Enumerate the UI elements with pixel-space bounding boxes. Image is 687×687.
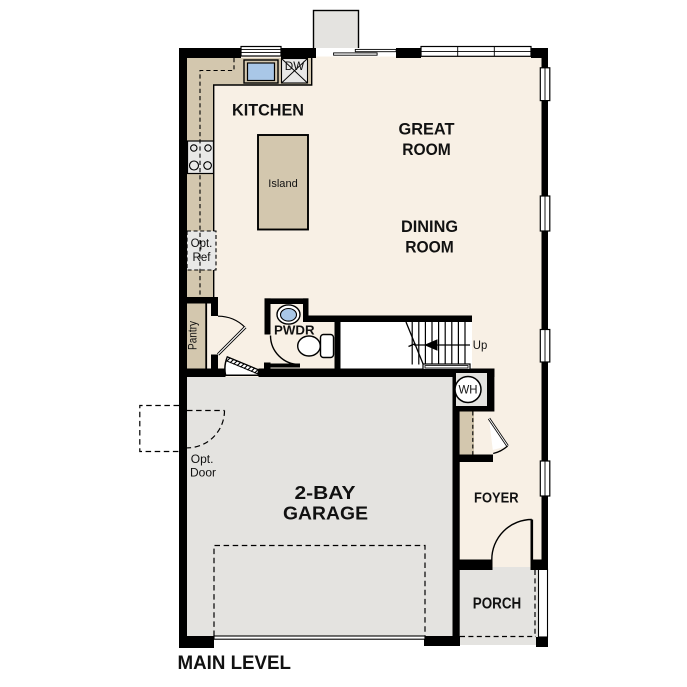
svg-text:ROOM: ROOM: [402, 140, 451, 159]
svg-text:Opt.: Opt.: [191, 238, 213, 250]
svg-text:Door: Door: [190, 466, 216, 480]
svg-text:Opt.: Opt.: [191, 452, 214, 466]
svg-text:Island: Island: [268, 178, 298, 190]
svg-text:Ref: Ref: [193, 252, 212, 264]
svg-text:Up: Up: [473, 338, 488, 352]
svg-text:DINING: DINING: [401, 217, 458, 236]
svg-text:GREAT: GREAT: [399, 120, 456, 139]
svg-text:Pantry: Pantry: [188, 321, 200, 350]
svg-text:PORCH: PORCH: [473, 596, 522, 613]
svg-text:2-BAY: 2-BAY: [295, 483, 356, 503]
svg-text:DW: DW: [285, 61, 305, 73]
svg-text:PWDR: PWDR: [274, 323, 315, 338]
svg-text:KITCHEN: KITCHEN: [232, 102, 304, 120]
svg-text:WH: WH: [459, 383, 478, 397]
svg-text:FOYER: FOYER: [474, 491, 519, 507]
svg-text:GARAGE: GARAGE: [283, 504, 368, 524]
svg-text:ROOM: ROOM: [405, 238, 454, 257]
svg-text:MAIN LEVEL: MAIN LEVEL: [178, 653, 292, 674]
